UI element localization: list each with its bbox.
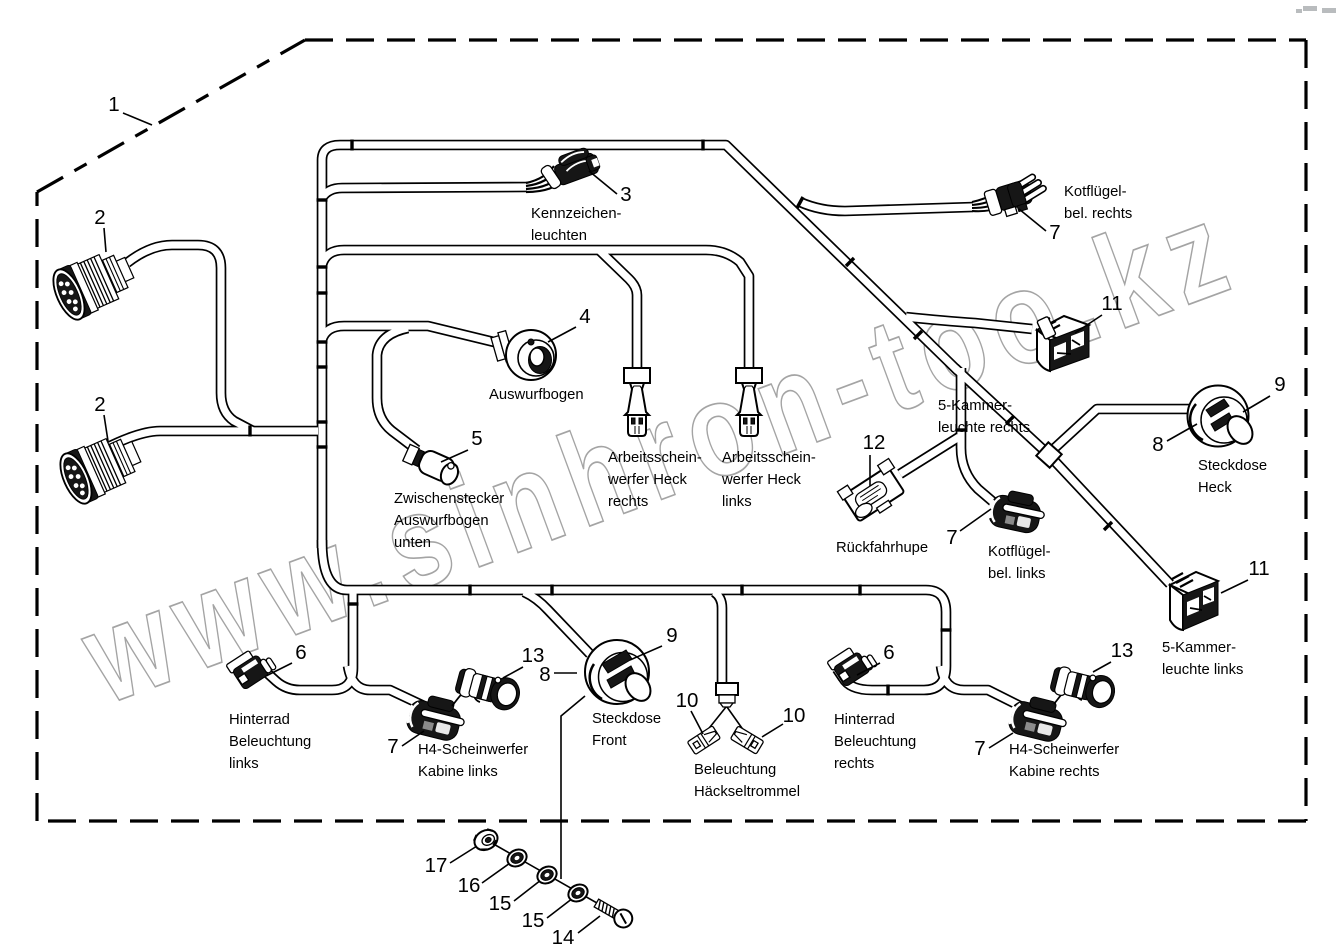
svg-text:8: 8 bbox=[1152, 433, 1163, 456]
svg-text:Kabine links: Kabine links bbox=[418, 764, 498, 780]
svg-text:Arbeitsschein-: Arbeitsschein- bbox=[608, 450, 702, 466]
svg-text:Beleuchtung: Beleuchtung bbox=[834, 734, 916, 750]
svg-text:Auswurfbogen: Auswurfbogen bbox=[394, 513, 489, 529]
svg-text:Hinterrad: Hinterrad bbox=[229, 712, 290, 728]
svg-text:13: 13 bbox=[1111, 639, 1134, 662]
svg-text:links: links bbox=[722, 494, 752, 510]
svg-text:17: 17 bbox=[425, 854, 448, 877]
svg-text:Arbeitsschein-: Arbeitsschein- bbox=[722, 450, 816, 466]
svg-text:Heck: Heck bbox=[1198, 480, 1232, 496]
svg-text:Steckdose: Steckdose bbox=[1198, 458, 1267, 474]
svg-text:H4-Scheinwerfer: H4-Scheinwerfer bbox=[418, 742, 528, 758]
svg-text:Kotflügel-: Kotflügel- bbox=[988, 544, 1051, 560]
svg-text:leuchte links: leuchte links bbox=[1162, 662, 1243, 678]
svg-text:10: 10 bbox=[783, 704, 806, 727]
svg-text:H4-Scheinwerfer: H4-Scheinwerfer bbox=[1009, 742, 1119, 758]
svg-text:Zwischenstecker: Zwischenstecker bbox=[394, 491, 504, 507]
svg-text:7: 7 bbox=[387, 735, 398, 758]
svg-text:12: 12 bbox=[863, 431, 886, 454]
svg-text:15: 15 bbox=[489, 892, 512, 915]
svg-text:Kennzeichen-: Kennzeichen- bbox=[531, 206, 622, 222]
svg-text:2: 2 bbox=[94, 206, 105, 229]
svg-text:links: links bbox=[229, 756, 259, 772]
svg-text:Steckdose: Steckdose bbox=[592, 711, 661, 727]
svg-text:5: 5 bbox=[471, 427, 482, 450]
svg-text:werfer Heck: werfer Heck bbox=[721, 472, 802, 488]
svg-text:bel. links: bel. links bbox=[988, 566, 1046, 582]
svg-text:Kabine rechts: Kabine rechts bbox=[1009, 764, 1099, 780]
svg-text:5-Kammer-: 5-Kammer- bbox=[938, 398, 1012, 414]
svg-text:11: 11 bbox=[1101, 292, 1122, 315]
svg-text:7: 7 bbox=[946, 526, 957, 549]
svg-text:Rückfahrhupe: Rückfahrhupe bbox=[836, 540, 928, 556]
svg-text:Häckseltrommel: Häckseltrommel bbox=[694, 784, 800, 800]
svg-text:7: 7 bbox=[1049, 221, 1060, 244]
svg-text:13: 13 bbox=[522, 644, 545, 667]
svg-text:9: 9 bbox=[666, 624, 677, 647]
svg-text:3: 3 bbox=[620, 183, 631, 206]
svg-text:bel. rechts: bel. rechts bbox=[1064, 206, 1132, 222]
svg-text:14: 14 bbox=[552, 926, 575, 949]
svg-text:16: 16 bbox=[458, 874, 481, 897]
svg-text:10: 10 bbox=[676, 689, 699, 712]
svg-text:Beleuchtung: Beleuchtung bbox=[229, 734, 311, 750]
svg-text:11: 11 bbox=[1248, 557, 1269, 580]
svg-text:9: 9 bbox=[1274, 373, 1285, 396]
svg-text:rechts: rechts bbox=[834, 756, 874, 772]
svg-text:5-Kammer-: 5-Kammer- bbox=[1162, 640, 1236, 656]
svg-text:7: 7 bbox=[974, 737, 985, 760]
svg-text:4: 4 bbox=[579, 305, 590, 328]
svg-text:6: 6 bbox=[883, 641, 894, 664]
svg-text:leuchten: leuchten bbox=[531, 228, 587, 244]
svg-text:2: 2 bbox=[94, 393, 105, 416]
svg-text:rechts: rechts bbox=[608, 494, 648, 510]
svg-text:Auswurfbogen: Auswurfbogen bbox=[489, 387, 584, 403]
svg-text:werfer Heck: werfer Heck bbox=[607, 472, 688, 488]
svg-text:15: 15 bbox=[522, 909, 545, 932]
svg-text:leuchte rechts: leuchte rechts bbox=[938, 420, 1030, 436]
svg-text:Hinterrad: Hinterrad bbox=[834, 712, 895, 728]
svg-text:unten: unten bbox=[394, 535, 431, 551]
svg-text:6: 6 bbox=[295, 641, 306, 664]
svg-text:Kotflügel-: Kotflügel- bbox=[1064, 184, 1127, 200]
svg-text:Front: Front bbox=[592, 733, 627, 749]
svg-text:Beleuchtung: Beleuchtung bbox=[694, 762, 776, 778]
svg-text:1: 1 bbox=[108, 93, 119, 116]
